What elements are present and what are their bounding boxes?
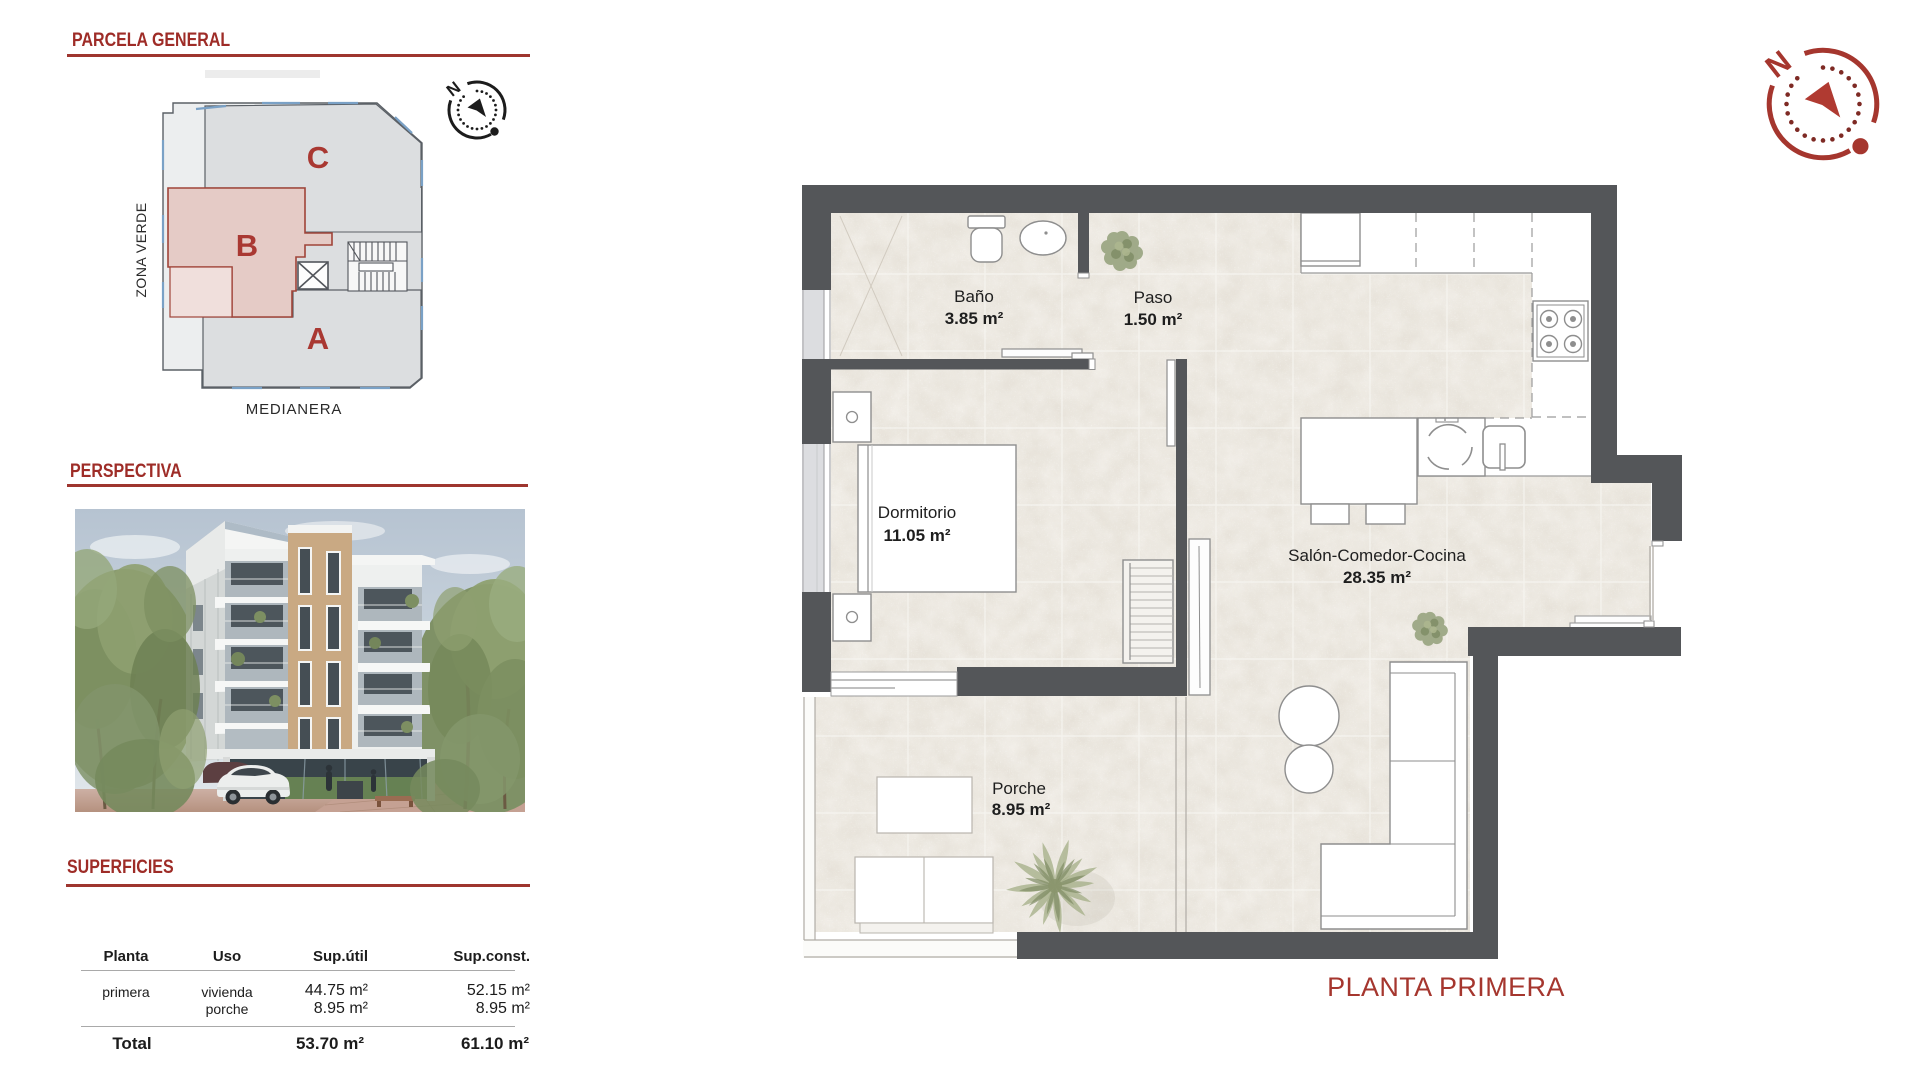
svg-text:N: N <box>443 78 464 101</box>
svg-text:3.85 m²: 3.85 m² <box>945 309 1004 328</box>
svg-text:ZONA VERDE: ZONA VERDE <box>133 202 149 297</box>
svg-text:MEDIANERA: MEDIANERA <box>246 401 342 418</box>
svg-text:B: B <box>236 228 258 263</box>
svg-text:8.95 m²: 8.95 m² <box>992 800 1051 819</box>
svg-text:PLANTA PRIMERA: PLANTA PRIMERA <box>1327 972 1565 1002</box>
svg-text:28.35 m²: 28.35 m² <box>1343 568 1411 587</box>
svg-text:Porche: Porche <box>992 779 1046 798</box>
svg-text:C: C <box>307 140 329 175</box>
svg-text:A: A <box>307 321 329 356</box>
svg-text:1.50 m²: 1.50 m² <box>1124 310 1183 329</box>
svg-text:N: N <box>1759 43 1798 84</box>
svg-text:Paso: Paso <box>1134 288 1173 307</box>
svg-text:Salón-Comedor-Cocina: Salón-Comedor-Cocina <box>1288 546 1466 565</box>
svg-text:Baño: Baño <box>954 287 994 306</box>
svg-text:11.05 m²: 11.05 m² <box>883 526 950 545</box>
svg-text:Dormitorio: Dormitorio <box>878 503 956 522</box>
